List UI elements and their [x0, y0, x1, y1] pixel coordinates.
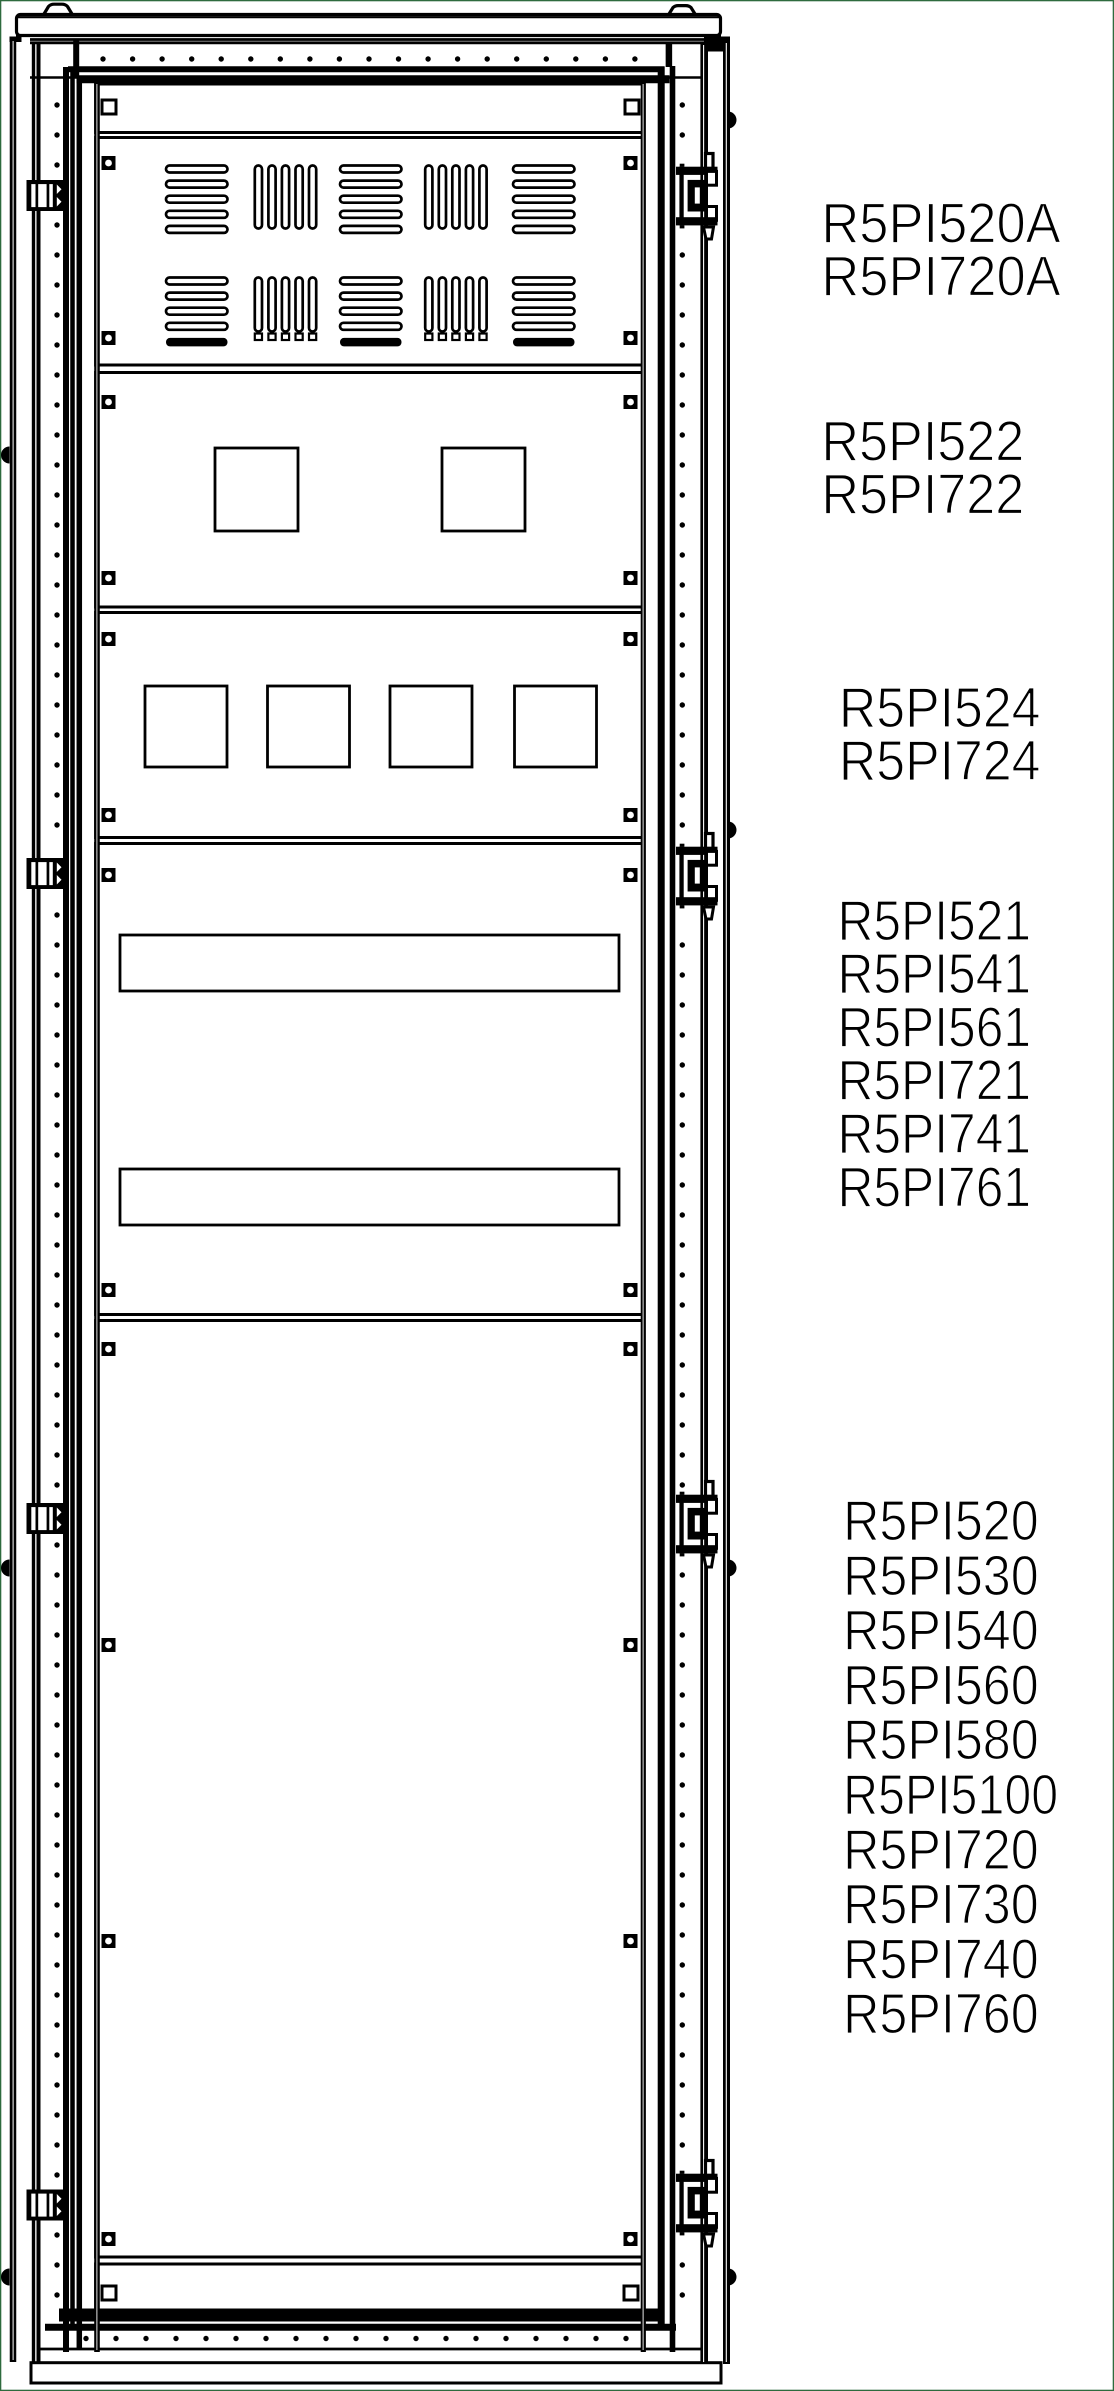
- svg-text:R5PI722: R5PI722: [821, 463, 1024, 527]
- svg-text:R5PI760: R5PI760: [843, 1982, 1039, 2046]
- svg-text:R5PI720A: R5PI720A: [821, 245, 1060, 309]
- svg-text:R5PI724: R5PI724: [839, 729, 1041, 793]
- svg-text:R5PI761: R5PI761: [838, 1155, 1032, 1219]
